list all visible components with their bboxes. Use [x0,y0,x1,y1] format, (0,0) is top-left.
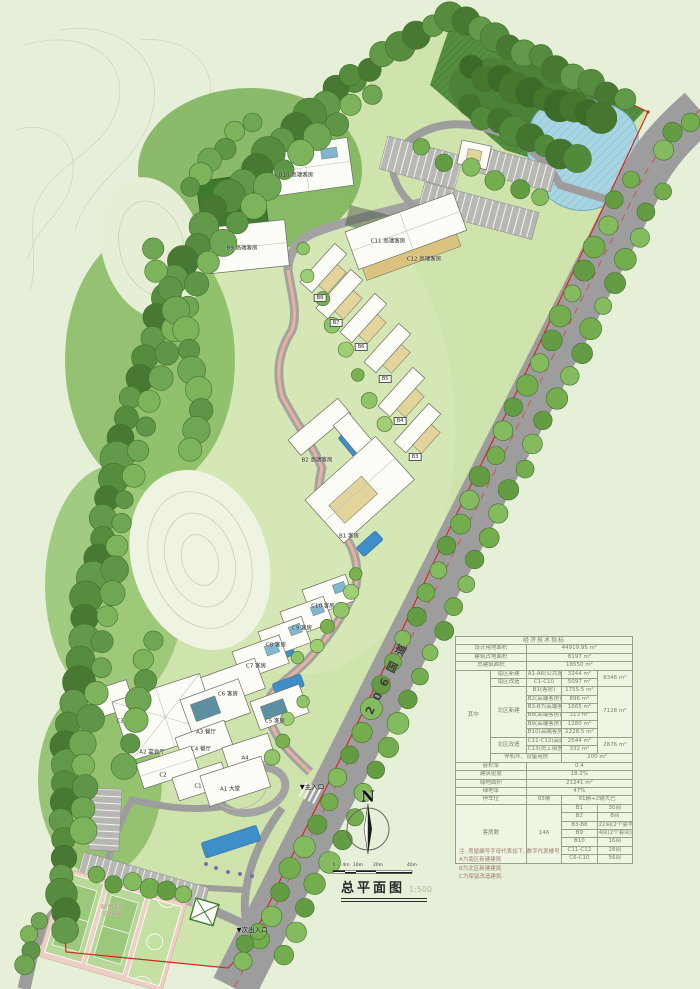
row-value: 44919.95 m² [526,645,632,653]
group-value: 1665 m² [562,704,597,712]
rooms-item: B3-B8 [562,821,597,829]
group-value: 896 m² [562,695,597,703]
row-label: 绿地率 [456,788,527,796]
heli-value: 200 m² [562,754,633,762]
group-subtotal: 8346 m² [597,670,632,687]
group-value: 1228.5 m² [562,729,597,737]
row-label: 停车位 [456,796,527,804]
group-value: 3244 m² [562,670,597,678]
heli-label: 停机坪、设备用房 [491,754,562,762]
group-name: 南区新建 [491,670,526,678]
group-subtotal: 7128 m² [597,687,632,737]
rooms-value: 22间(2个豪华套间) [597,821,632,829]
title-underline-2 [341,901,427,902]
table-title: 经济技术指标 [456,637,633,645]
group-item: A1-A6(公共服务) [526,670,561,678]
group-item: C1-C10 [526,678,561,686]
row-label: 建筑密度 [456,771,527,779]
group-item: B10(高端客房) [526,729,561,737]
group-name: 北区新建 [491,687,526,737]
legend-notes: 注: 房屋编号字母代表如下, 数字代表楼号 A为南区新建建筑 B为北区新建建筑 … [459,848,560,881]
note-line: A为南区新建建筑 [459,856,560,864]
title-scale: 1:500 [409,885,432,894]
group-value: 1755.5 m² [562,687,597,695]
group-value: 1280 m² [562,720,597,728]
row-label: 绿地面积 [456,779,527,787]
group-item: B8(高端客房) [526,712,561,720]
row-value: 47% [526,788,632,796]
group-name: 南区改造 [491,678,526,686]
note-line: B为北区新建建筑 [459,865,560,873]
rooms-value: 28间 [597,846,632,854]
group-item: B2(高端客房) [526,695,561,703]
rooms-value: 8间 [597,813,632,821]
rooms-item: B9 [562,829,597,837]
group-name: 北区改造 [491,737,526,754]
group-value: 332 m² [562,746,597,754]
rooms-value: 30间 [597,804,632,812]
rooms-item: B1 [562,804,597,812]
rooms-value: 4间(2个套间) [597,829,632,837]
row-label: 容积率 [456,762,527,770]
group-subtotal: 2876 m² [597,737,632,754]
parking-detail: 91辆+2辆大巴 [562,796,633,804]
title-block: 总平面图1:500 [341,877,432,902]
row-label: 总建筑面积 [456,662,527,670]
group-item: B1(客房) [526,687,561,695]
parking-count: 93辆 [526,796,561,804]
rooms-item: C6-C10 [562,855,597,863]
note-line: C为保留改造建筑 [459,873,560,881]
group-item: B9(高端客房) [526,720,561,728]
title-underline-1 [341,898,427,899]
group-item: B3-B7(高端客房) [526,704,561,712]
row-value: 21241 m² [526,779,632,787]
site-plan-canvas: B10 高端客房 B9 高端客房 C11 高端客房 C12 高端客房 B8 B7… [0,0,700,989]
group-item: C13(员工宿舍) [526,746,561,754]
group-value: 5097 m² [562,678,597,686]
group-value: 2544 m² [562,737,597,745]
scale-bar [333,871,412,874]
page-title: 总平面图 [341,881,405,896]
group-value: 313 m² [562,712,597,720]
row-value: 0.4 [526,762,632,770]
indicator-table: 经济技术指标 设计用地面积44919.95 m² 建筑占地面积8197 m² 总… [455,636,633,864]
row-value: 18.2% [526,771,632,779]
rooms-item: B10 [562,838,597,846]
note-line: 注: 房屋编号字母代表如下, 数字代表楼号 [459,848,560,856]
row-label: 建筑占地面积 [456,653,527,661]
row-value: 8197 m² [526,653,632,661]
rooms-item: C11-C12 [562,846,597,854]
row-label: 设计用地面积 [456,645,527,653]
rooms-value: 16间 [597,838,632,846]
rooms-value: 56间 [597,855,632,863]
rooms-item: B2 [562,813,597,821]
row-value: 18550 m² [526,662,632,670]
group-item: C11-C12(高端客房) [526,737,561,745]
breakdown-label: 其中 [456,670,491,762]
